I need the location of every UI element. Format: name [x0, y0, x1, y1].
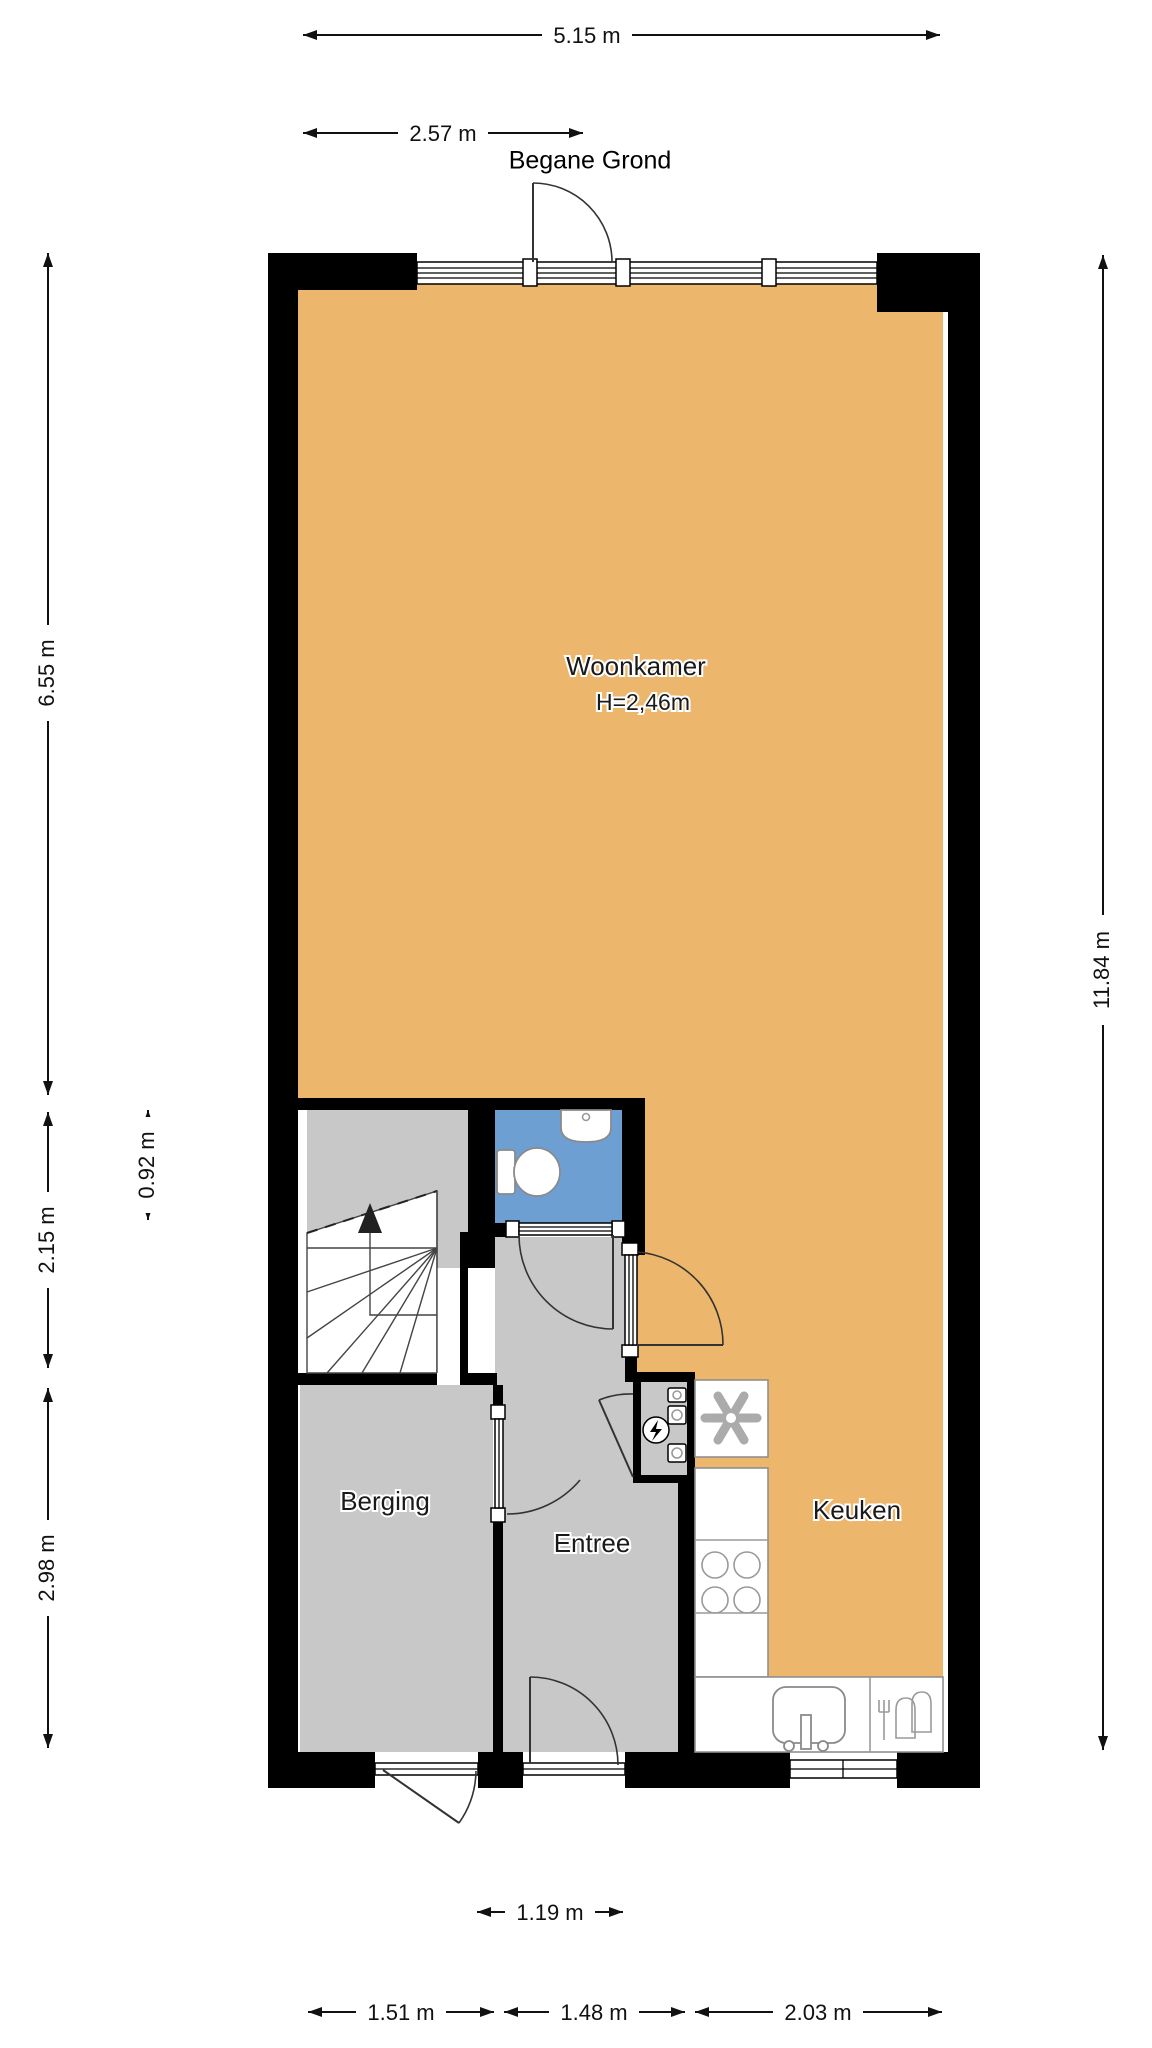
toilet-bowl: [514, 1148, 560, 1196]
mv-fan-hub: [726, 1413, 736, 1423]
woonkamer-height-label: H=2,46m: [596, 689, 690, 715]
entree-label: Entree: [554, 1528, 631, 1558]
woonkamer-label: Woonkamer: [566, 651, 706, 681]
floorplan-canvas: Woonkamer H=2,46m Keuken Berging Entree …: [0, 0, 1152, 2048]
toilet-tank: [497, 1150, 515, 1194]
dim-left-lower: 2.98 m: [34, 1534, 59, 1601]
floorplan-page: Woonkamer H=2,46m Keuken Berging Entree …: [0, 0, 1152, 2048]
keuken-label: Keuken: [813, 1495, 901, 1525]
dim-left-upper: 6.55 m: [34, 639, 59, 706]
sink-faucet: [801, 1715, 811, 1749]
berging-floor: [300, 1385, 493, 1752]
keuken-floor-mid: [637, 1235, 943, 1372]
plan-title: Begane Grond: [509, 147, 672, 175]
keuken-floor-upper: [645, 1098, 943, 1235]
front-door-top: [533, 183, 612, 262]
berging-label: Berging: [340, 1486, 430, 1516]
dim-top-left: 2.57 m: [409, 121, 476, 146]
kitchen-window: [790, 1760, 897, 1778]
dim-bottom-entree: 1.48 m: [560, 2000, 627, 2025]
berging-exterior-door: [375, 1763, 478, 1823]
dim-left-wc: 0.92 m: [134, 1131, 159, 1198]
dim-right-total: 11.84 m: [1089, 931, 1114, 1009]
dim-top-total: 5.15 m: [553, 23, 620, 48]
dim-bottom-berging: 1.51 m: [367, 2000, 434, 2025]
dim-bottom-keuken: 2.03 m: [784, 2000, 851, 2025]
dim-bottom-door: 1.19 m: [516, 1900, 583, 1925]
wash-basin: [561, 1110, 611, 1142]
front-window-top: [417, 259, 877, 286]
dim-left-stairs: 2.15 m: [34, 1206, 59, 1273]
